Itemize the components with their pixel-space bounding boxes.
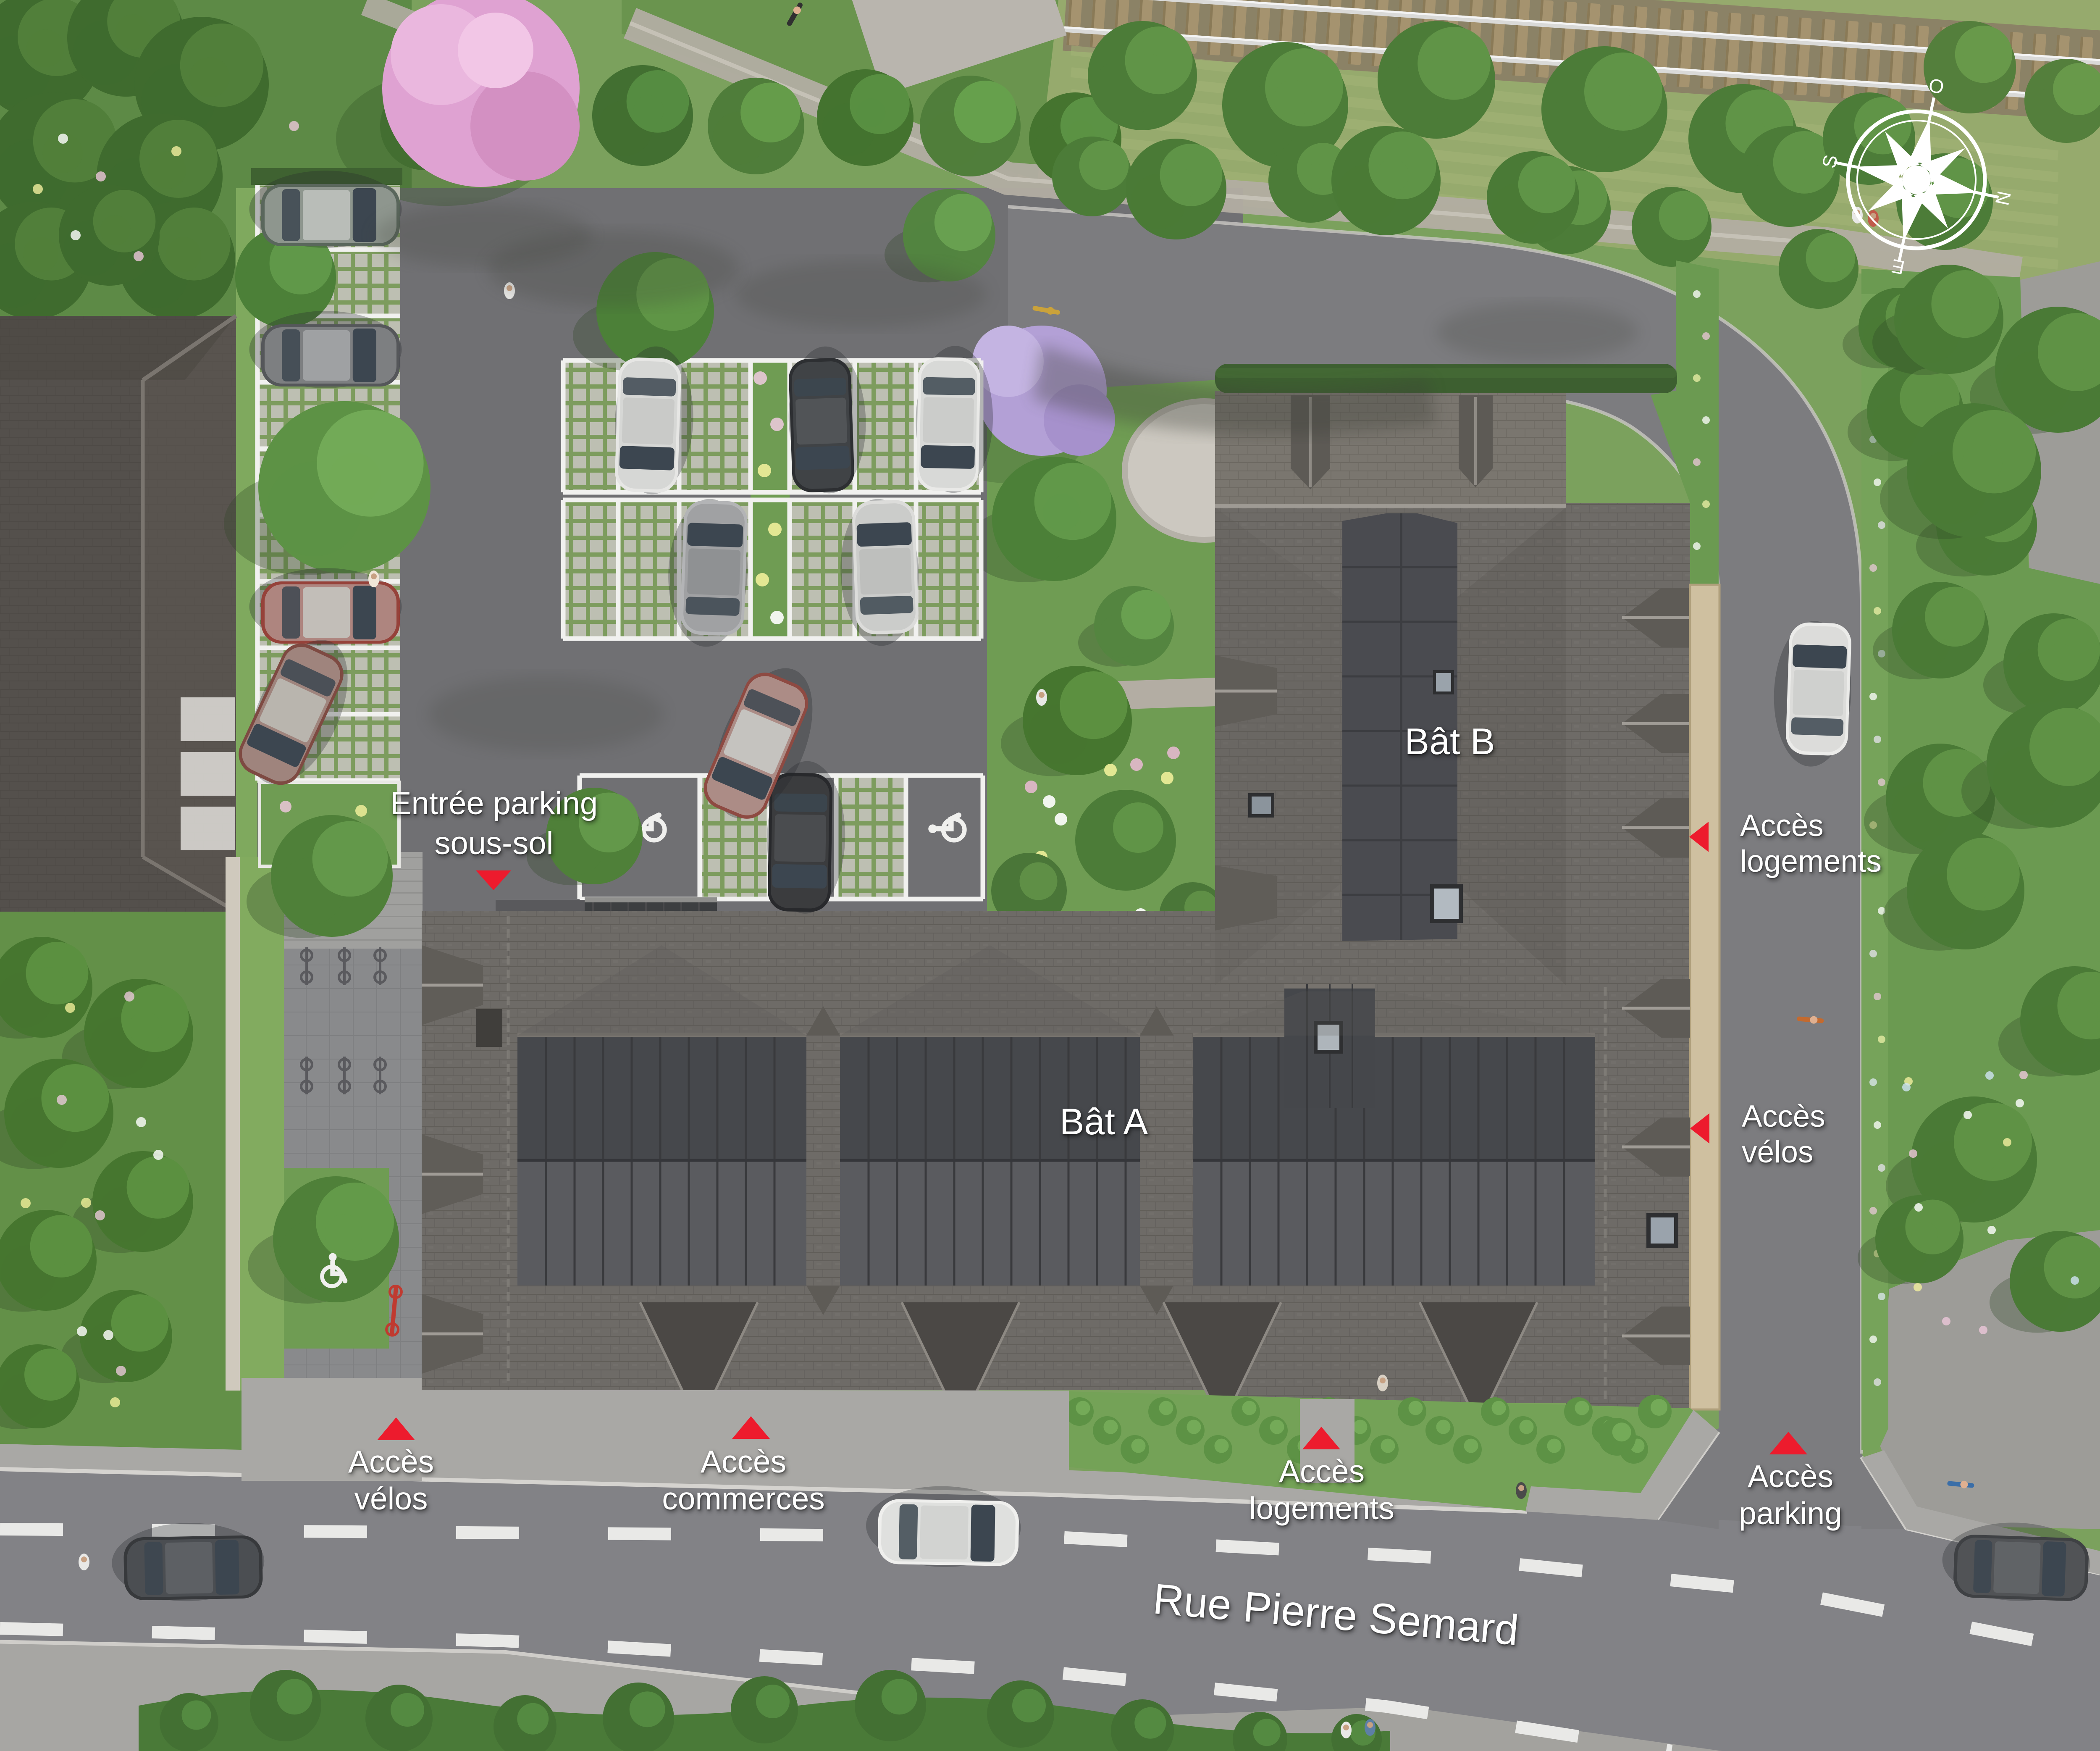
svg-text:Bât A: Bât A (1060, 1101, 1148, 1142)
svg-text:Bât B: Bât B (1404, 720, 1495, 762)
